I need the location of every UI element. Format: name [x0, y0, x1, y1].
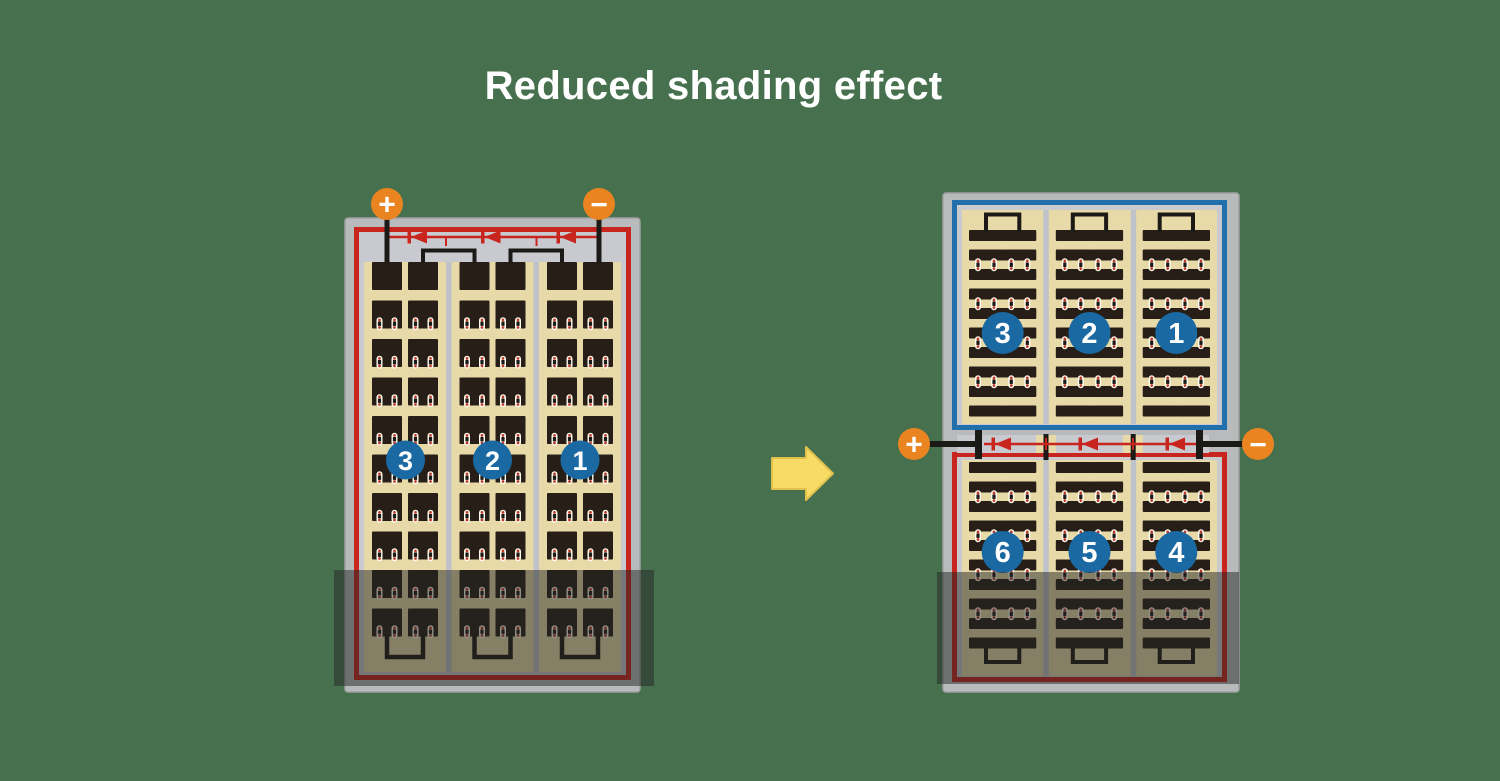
svg-text:6: 6 — [995, 537, 1011, 569]
segment-badge-1: 1 — [1155, 312, 1197, 354]
shade-overlay — [937, 572, 1239, 684]
svg-text:5: 5 — [1081, 537, 1097, 569]
segment-badge-label: 2 — [1081, 318, 1097, 350]
segment-badge-label: 3 — [398, 446, 413, 476]
negative-terminal: − — [583, 188, 615, 222]
svg-text:1: 1 — [572, 446, 587, 476]
solar-panel-shading-diagram: 321+−321654+− — [0, 0, 1500, 781]
diagram-stage: Reduced shading effect 321+−321654+− — [0, 0, 1500, 781]
left-module: 321+− — [334, 188, 654, 692]
segment-badge-5: 5 — [1069, 531, 1111, 573]
svg-text:4: 4 — [1168, 537, 1184, 569]
positive-terminal: + — [371, 188, 403, 222]
svg-text:−: − — [1249, 429, 1267, 462]
segment-badge-label: 3 — [995, 318, 1011, 350]
segment-badge-6: 6 — [982, 531, 1024, 573]
segment-badge-3: 3 — [982, 312, 1024, 354]
svg-text:−: − — [590, 189, 608, 222]
svg-text:3: 3 — [398, 446, 413, 476]
segment-badge-1: 1 — [561, 441, 600, 480]
positive-terminal: + — [898, 428, 930, 462]
minus-icon: − — [590, 189, 608, 222]
segment-badge-2: 2 — [473, 441, 512, 480]
segment-badge-label: 4 — [1168, 537, 1184, 569]
arrow-right-icon — [772, 447, 833, 500]
svg-text:+: + — [378, 189, 396, 222]
segment-badge-label: 6 — [995, 537, 1011, 569]
segment-badge-3: 3 — [386, 441, 425, 480]
svg-text:2: 2 — [485, 446, 500, 476]
segment-badge-2: 2 — [1069, 312, 1111, 354]
minus-icon: − — [1249, 429, 1267, 462]
negative-terminal: − — [1242, 428, 1274, 462]
right-module: 321654+− — [898, 193, 1274, 692]
svg-text:+: + — [905, 429, 923, 462]
segment-badge-label: 1 — [1168, 318, 1184, 350]
segment-badge-label: 5 — [1081, 537, 1097, 569]
segment-badge-label: 2 — [485, 446, 500, 476]
plus-icon: + — [905, 429, 923, 462]
plus-icon: + — [378, 189, 396, 222]
svg-text:1: 1 — [1168, 318, 1184, 350]
svg-text:3: 3 — [995, 318, 1011, 350]
shade-overlay — [334, 570, 654, 686]
segment-badge-label: 1 — [572, 446, 587, 476]
top-substring: 321 — [952, 200, 1227, 430]
segment-badge-4: 4 — [1155, 531, 1197, 573]
svg-text:2: 2 — [1081, 318, 1097, 350]
